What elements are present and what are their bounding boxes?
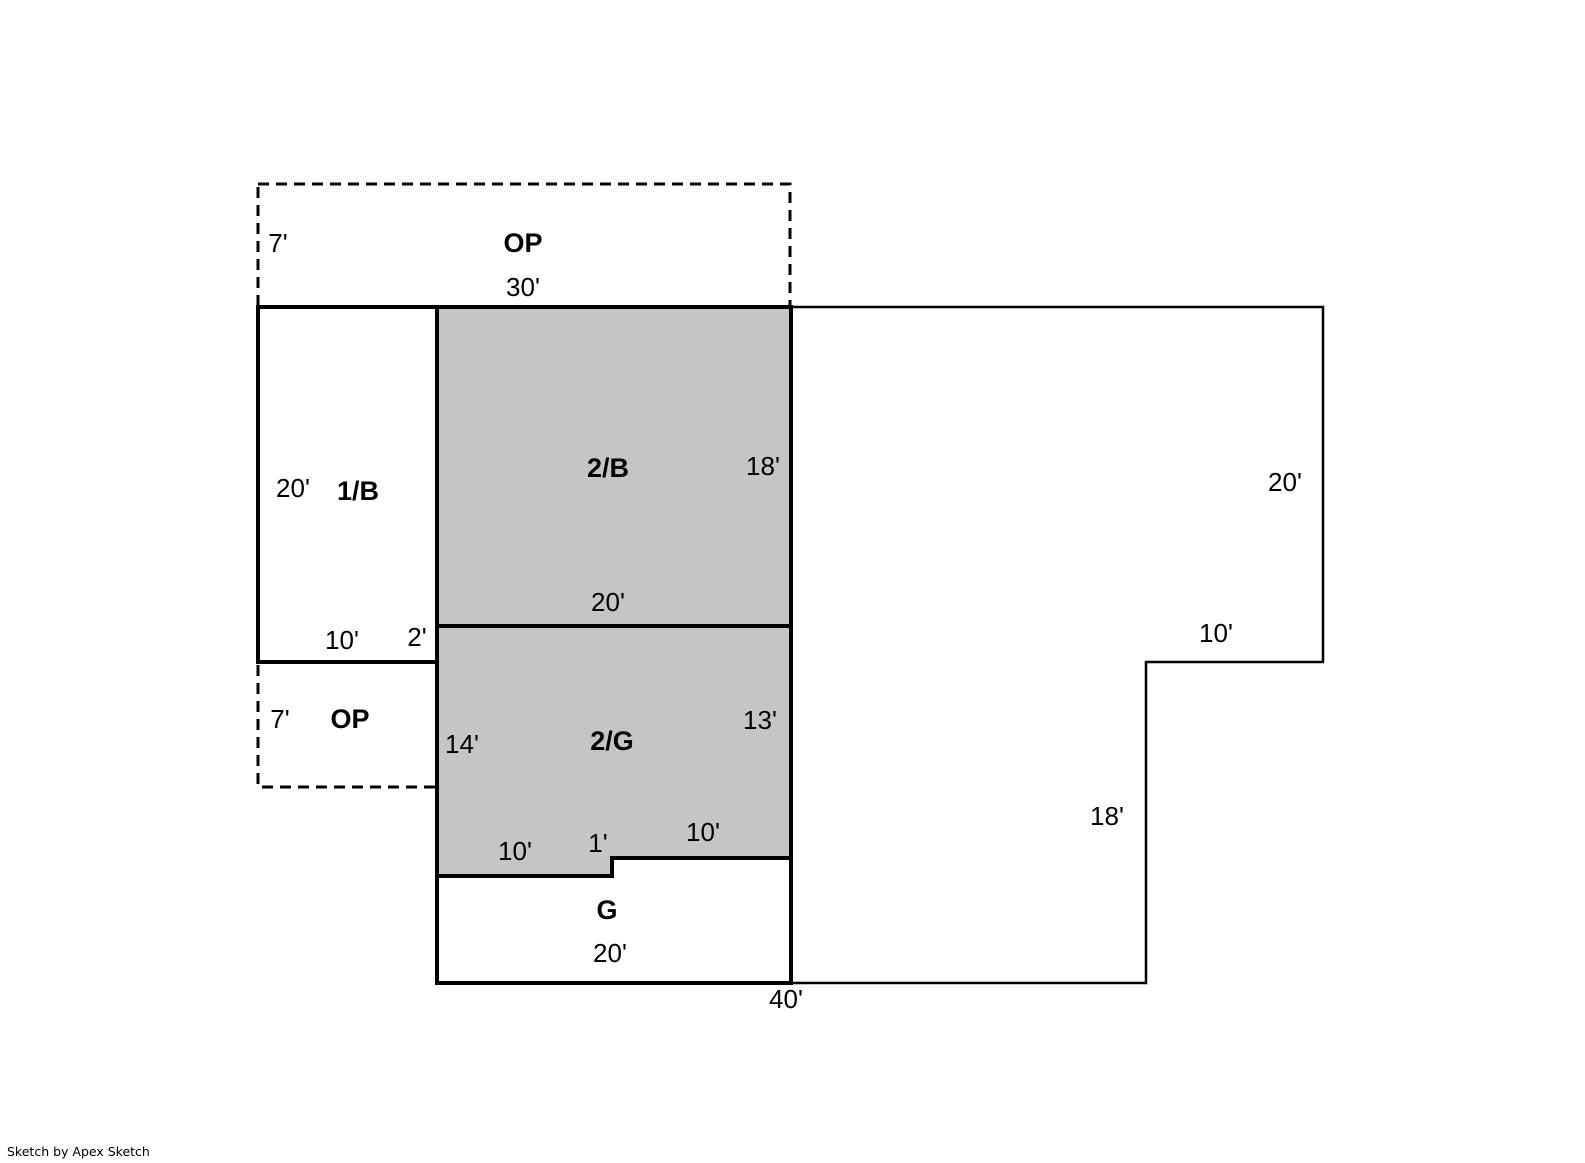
dim-2g-offset: 2' (407, 622, 426, 652)
dim-2b-height: 18' (746, 451, 780, 481)
dim-op-top-width: 30' (506, 272, 540, 302)
dim-2g-step: 1' (588, 828, 607, 858)
dim-1b-width: 10' (325, 625, 359, 655)
right-wing (791, 307, 1323, 983)
dim-2g-bottom-right: 10' (686, 817, 720, 847)
dim-op-lower-height: 7' (270, 704, 289, 734)
dim-right-height: 20' (1268, 467, 1302, 497)
label-1b: 1/B (337, 476, 379, 506)
dim-2g-right: 13' (743, 705, 777, 735)
dim-1b-height: 20' (276, 473, 310, 503)
dim-right-step-top: 10' (1199, 618, 1233, 648)
dim-op-top-height: 7' (268, 228, 287, 258)
dim-2g-bottom-left: 10' (498, 836, 532, 866)
dim-right-step-side: 18' (1090, 801, 1124, 831)
label-op-lower: OP (330, 704, 369, 734)
sketch-page: 7'OP30'20'1/B2/B18'20'10'2'7'OP14'2/G13'… (0, 0, 1585, 1163)
credit-text: Sketch by Apex Sketch (7, 1144, 150, 1159)
label-g: G (596, 895, 617, 925)
floorplan-sketch: 7'OP30'20'1/B2/B18'20'10'2'7'OP14'2/G13'… (0, 0, 1585, 1163)
label-op-top: OP (503, 228, 542, 258)
label-2b: 2/B (587, 453, 629, 483)
dim-2b-width: 20' (591, 587, 625, 617)
dim-2g-left: 14' (445, 729, 479, 759)
dim-g-width: 20' (593, 938, 627, 968)
label-2g: 2/G (590, 726, 634, 756)
dim-bottom-total: 40' (769, 984, 803, 1014)
